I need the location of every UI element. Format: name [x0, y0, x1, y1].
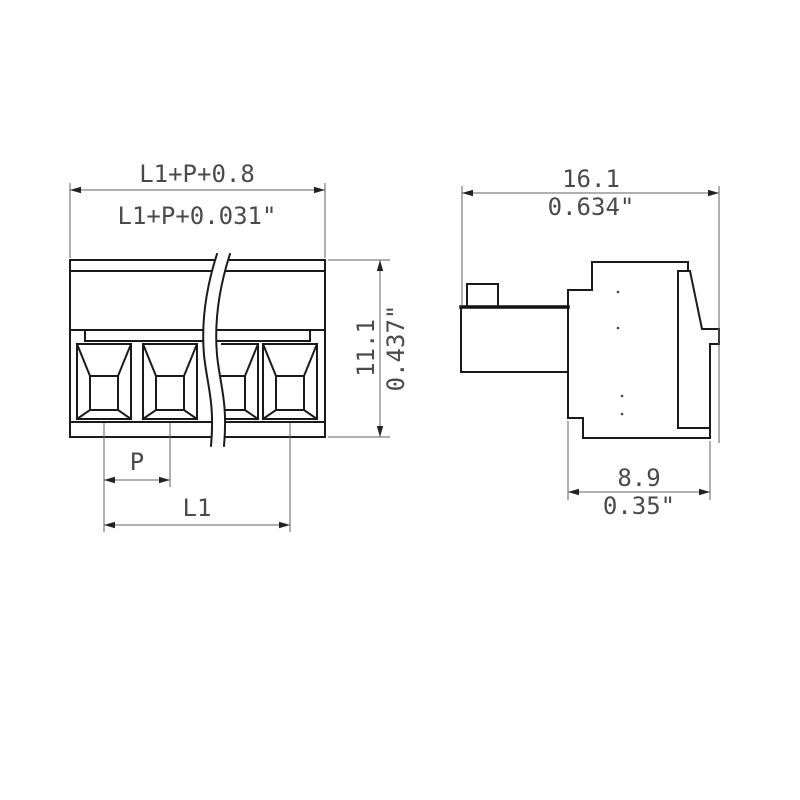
dim-overall-width-inch: L1+P+0.031" — [118, 202, 277, 230]
dim-overall-width: L1+P+0.8 L1+P+0.031" — [70, 160, 325, 258]
dim-length: L1 — [104, 423, 290, 532]
dim-side-width: 16.1 0.634" — [462, 165, 719, 443]
rear-flange — [678, 271, 719, 428]
technical-drawing: L1+P+0.8 L1+P+0.031" 11.1 0.437" P L1 16… — [0, 0, 800, 800]
dim-pitch: P — [104, 423, 170, 532]
break-line — [203, 254, 230, 446]
plug-protrusion — [461, 284, 568, 372]
terminal-pocket-4 — [263, 344, 317, 419]
dim-side-width-inch: 0.634" — [548, 193, 635, 221]
dim-side-width-mm: 16.1 — [562, 165, 620, 193]
dim-height-inch: 0.437" — [382, 305, 410, 392]
drawing-canvas: L1+P+0.8 L1+P+0.031" 11.1 0.437" P L1 16… — [0, 0, 800, 800]
dim-side-depth: 8.9 0.35" — [568, 421, 710, 520]
latch-bump — [467, 284, 498, 307]
terminal-pocket-1 — [77, 344, 131, 419]
dim-side-depth-mm: 8.9 — [617, 464, 660, 492]
front-view — [70, 254, 325, 446]
dim-height-mm: 11.1 — [352, 319, 380, 377]
dim-overall-width-mm: L1+P+0.8 — [139, 160, 255, 188]
dim-length-label: L1 — [183, 494, 212, 522]
side-view-body — [568, 262, 719, 438]
dim-pitch-label: P — [130, 448, 144, 476]
center-line-dots — [617, 291, 624, 416]
side-view — [461, 262, 719, 438]
dim-side-depth-inch: 0.35" — [603, 492, 675, 520]
terminal-pocket-2 — [143, 344, 197, 419]
dim-height: 11.1 0.437" — [328, 260, 410, 437]
